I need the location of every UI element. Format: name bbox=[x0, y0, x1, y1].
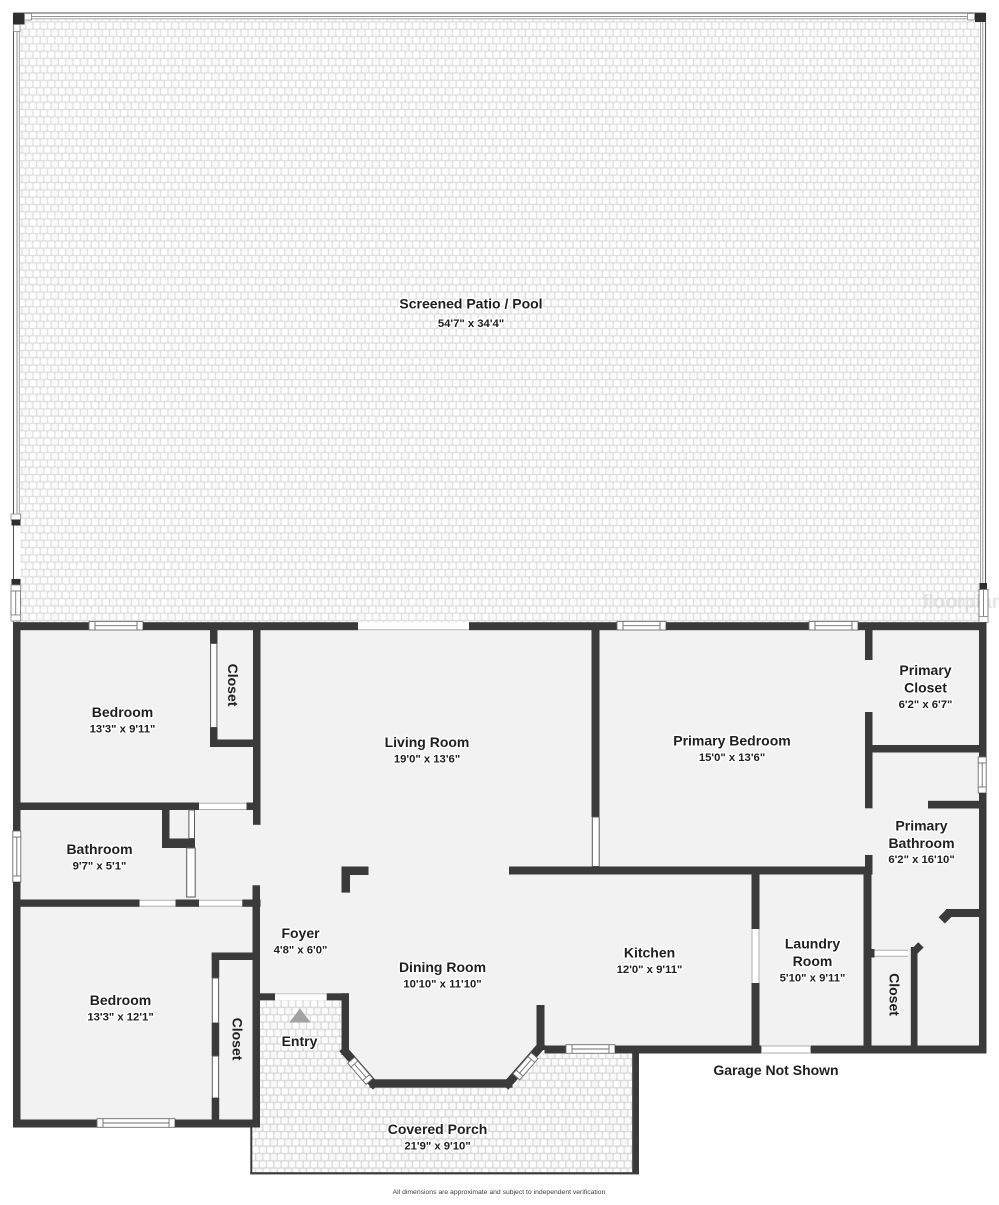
svg-text:4'8" x 6'0": 4'8" x 6'0" bbox=[274, 944, 328, 956]
svg-text:13'3" x 12'1": 13'3" x 12'1" bbox=[87, 1011, 153, 1023]
svg-text:13'3" x 9'11": 13'3" x 9'11" bbox=[90, 723, 156, 735]
svg-text:10'10" x 11'10": 10'10" x 11'10" bbox=[403, 978, 481, 990]
svg-text:Laundry: Laundry bbox=[785, 936, 840, 952]
svg-text:Room: Room bbox=[793, 953, 833, 969]
svg-text:Closet: Closet bbox=[225, 664, 241, 707]
svg-text:Bedroom: Bedroom bbox=[92, 704, 153, 720]
svg-text:Covered Porch: Covered Porch bbox=[388, 1121, 488, 1137]
svg-text:9'7" x 5'1": 9'7" x 5'1" bbox=[73, 860, 127, 872]
svg-text:Foyer: Foyer bbox=[281, 925, 320, 941]
svg-text:Screened Patio / Pool: Screened Patio / Pool bbox=[399, 295, 542, 311]
svg-text:Primary Bedroom: Primary Bedroom bbox=[673, 733, 790, 749]
svg-text:Closet: Closet bbox=[230, 1018, 246, 1061]
svg-text:12'0" x 9'11": 12'0" x 9'11" bbox=[617, 964, 683, 976]
svg-text:19'0" x 13'6": 19'0" x 13'6" bbox=[394, 753, 460, 765]
svg-text:5'10" x 9'11": 5'10" x 9'11" bbox=[780, 972, 846, 984]
svg-text:Living Room: Living Room bbox=[385, 734, 470, 750]
svg-text:6'2" x 16'10": 6'2" x 16'10" bbox=[888, 854, 954, 866]
svg-text:Dining Room: Dining Room bbox=[399, 959, 486, 975]
svg-text:Bathroom: Bathroom bbox=[888, 835, 954, 851]
svg-text:6'2" x 6'7": 6'2" x 6'7" bbox=[899, 699, 953, 711]
svg-text:Primary: Primary bbox=[899, 662, 951, 678]
svg-text:Closet: Closet bbox=[887, 973, 903, 1016]
svg-text:Garage Not Shown: Garage Not Shown bbox=[713, 1062, 838, 1078]
svg-text:Kitchen: Kitchen bbox=[624, 945, 675, 961]
svg-text:Primary: Primary bbox=[895, 817, 947, 833]
svg-text:15'0" x 13'6": 15'0" x 13'6" bbox=[699, 752, 765, 764]
svg-text:All dimensions are approximate: All dimensions are approximate and subje… bbox=[393, 1189, 606, 1196]
svg-text:54'7" x 34'4": 54'7" x 34'4" bbox=[438, 318, 504, 330]
svg-text:Bedroom: Bedroom bbox=[90, 992, 151, 1008]
svg-text:Bathroom: Bathroom bbox=[66, 841, 132, 857]
svg-text:Entry: Entry bbox=[282, 1033, 318, 1049]
svg-text:Closet: Closet bbox=[904, 680, 947, 696]
svg-text:21'9" x 9'10": 21'9" x 9'10" bbox=[404, 1140, 470, 1152]
